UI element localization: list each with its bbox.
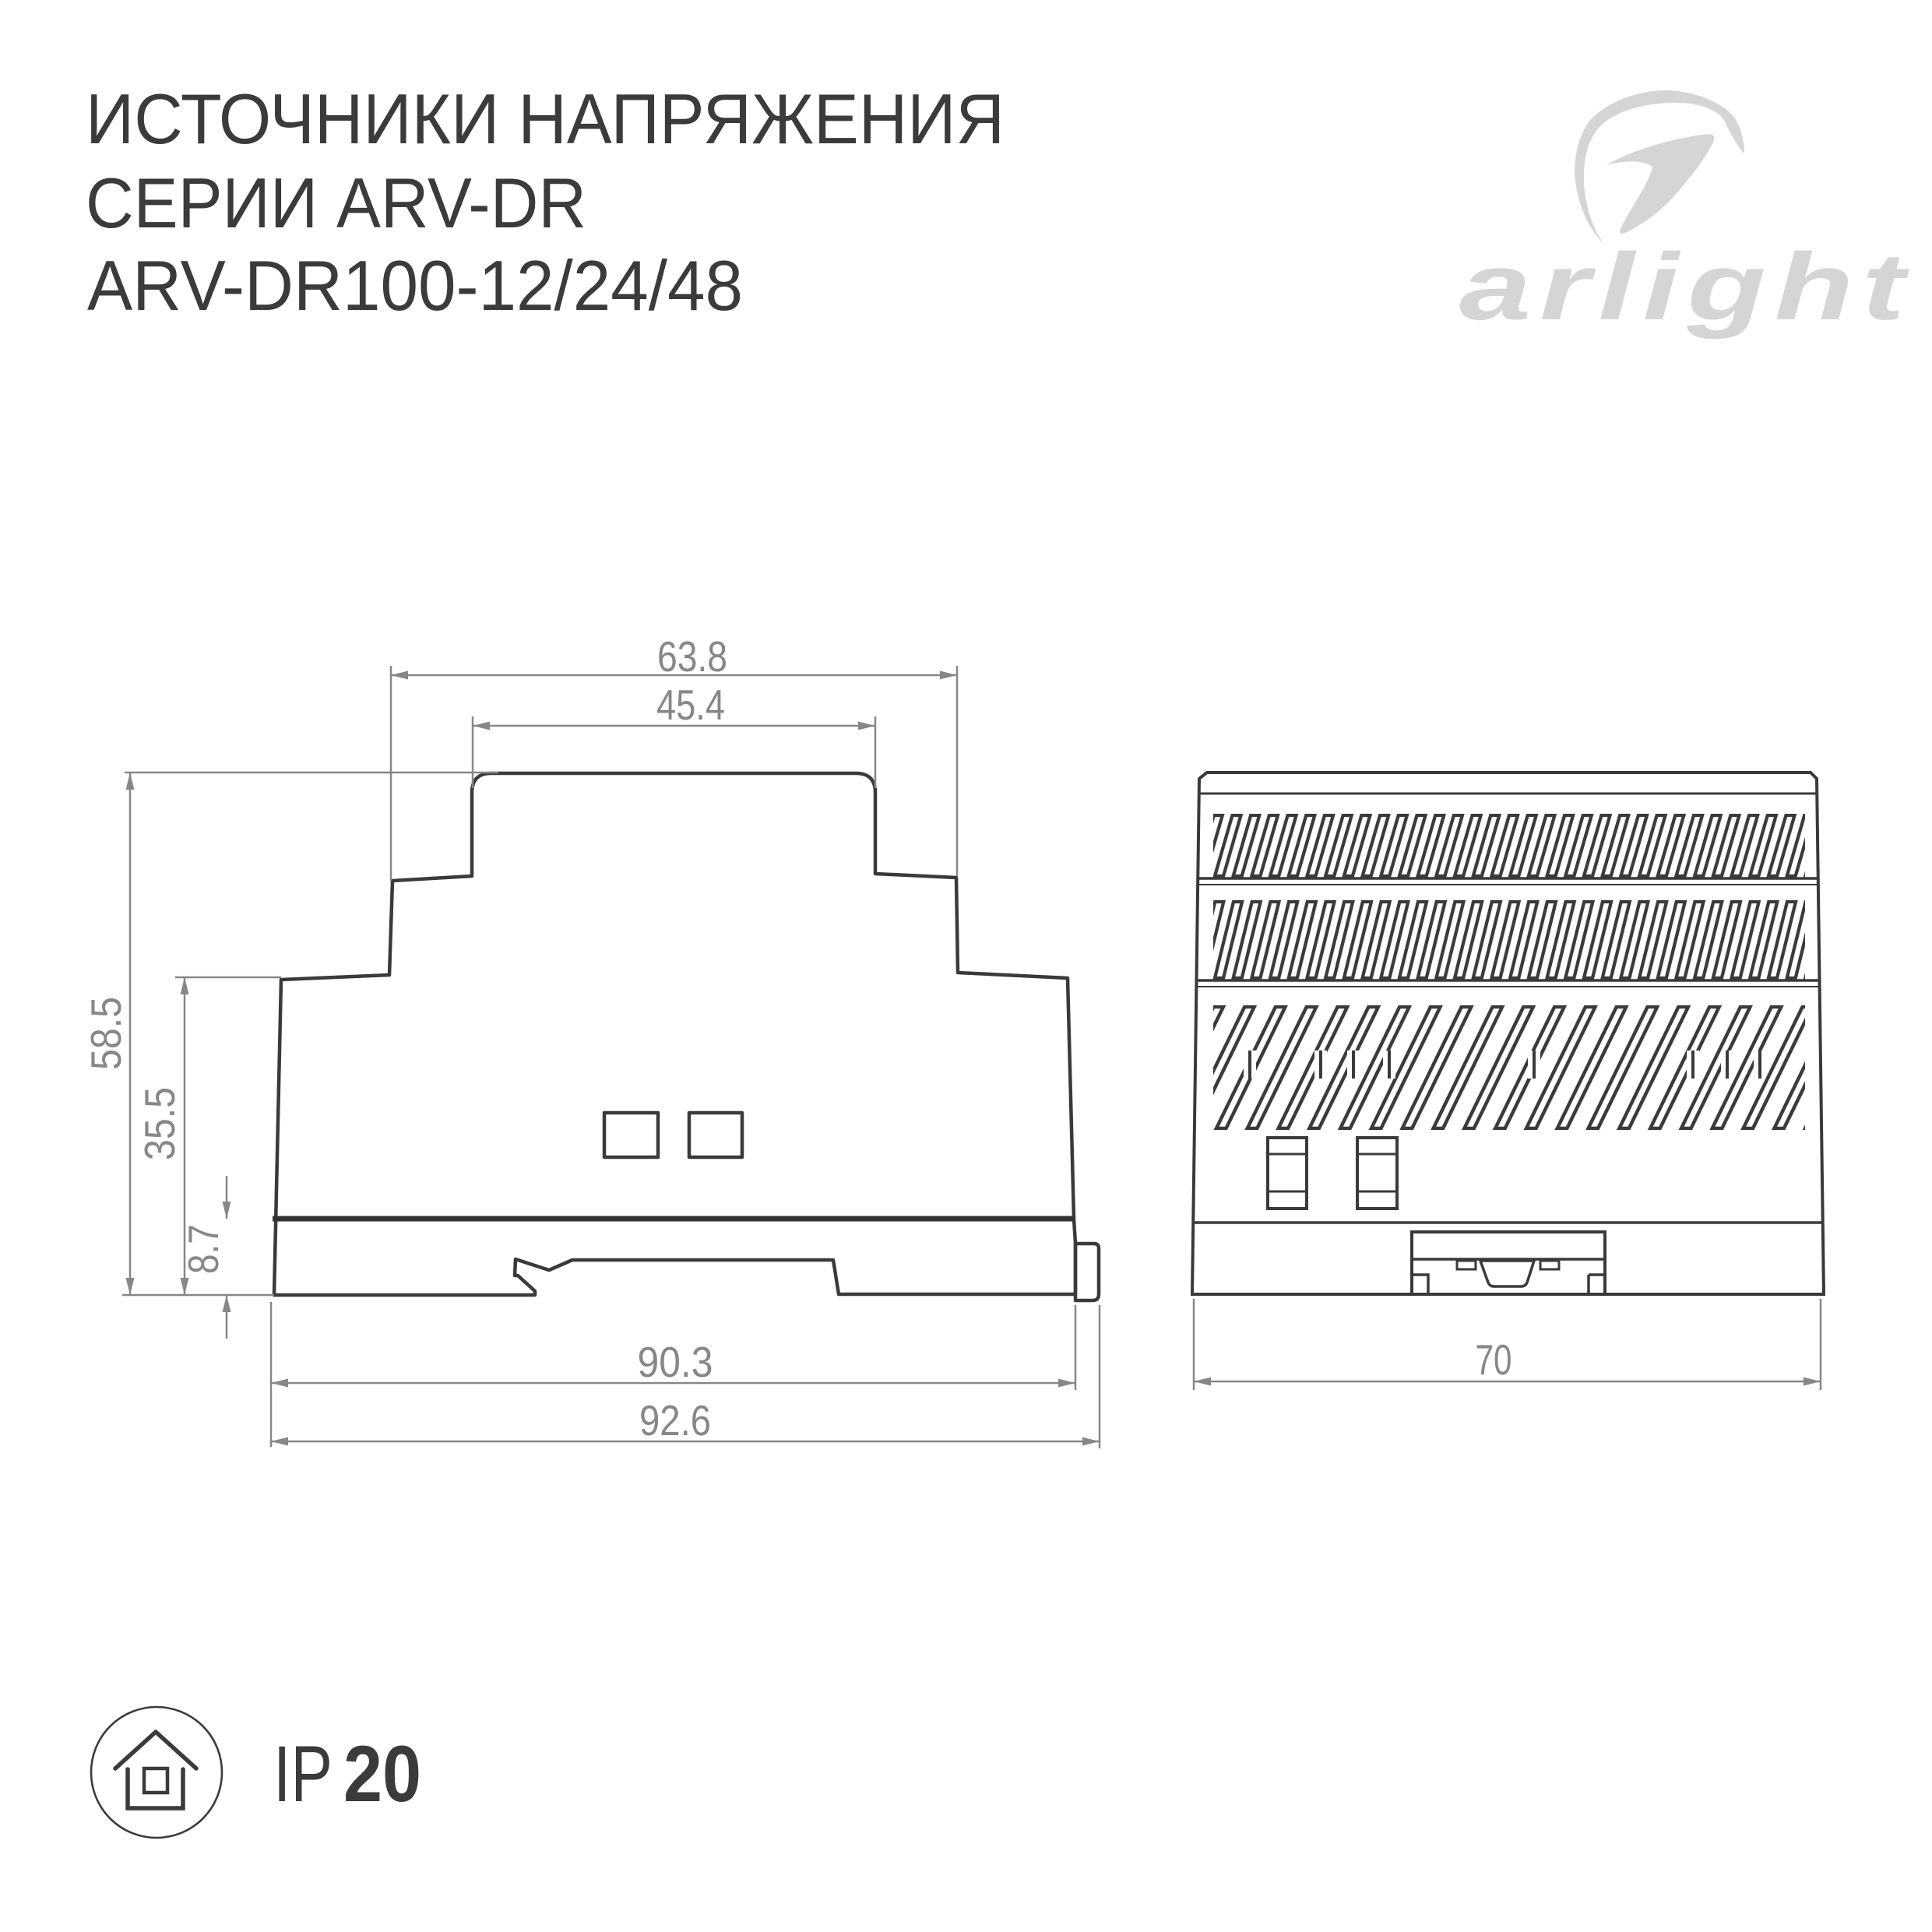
svg-text:58.5: 58.5: [82, 997, 130, 1070]
svg-text:45.4: 45.4: [656, 681, 725, 729]
svg-text:ИСТОЧНИКИ НАПРЯЖЕНИЯ: ИСТОЧНИКИ НАПРЯЖЕНИЯ: [86, 80, 1005, 159]
svg-text:63.8: 63.8: [657, 632, 727, 681]
svg-text:92.6: 92.6: [639, 1396, 711, 1445]
svg-text:arlight: arlight: [1459, 234, 1913, 340]
svg-text:35.5: 35.5: [135, 1087, 184, 1160]
svg-text:ARV-DR100-12/24/48: ARV-DR100-12/24/48: [87, 247, 743, 326]
svg-text:90.3: 90.3: [638, 1338, 713, 1386]
svg-text:IP: IP: [273, 1730, 333, 1818]
svg-text:СЕРИИ ARV-DR: СЕРИИ ARV-DR: [86, 164, 586, 243]
svg-text:70: 70: [1476, 1336, 1512, 1384]
svg-text:8.7: 8.7: [179, 1224, 227, 1274]
svg-text:20: 20: [343, 1730, 421, 1818]
